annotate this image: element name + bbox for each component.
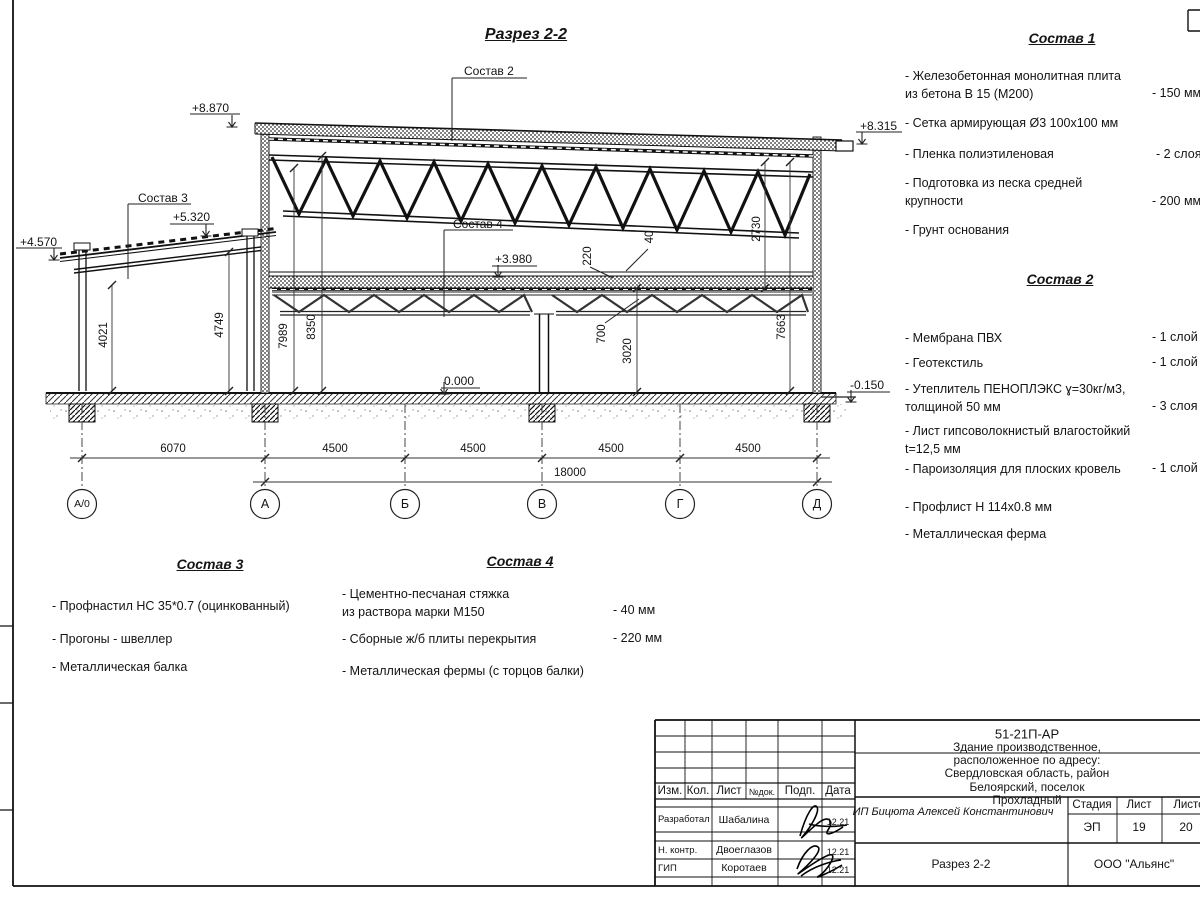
- sostav4-value: - 40 мм: [613, 603, 655, 617]
- sostav2-value: - 1 слой: [1152, 330, 1198, 344]
- sheet-number: 19: [1132, 820, 1145, 834]
- axis-bubble-d: Д: [813, 497, 821, 511]
- designer-name: ИП Бицюта Алексей Константинович: [853, 806, 1054, 818]
- dim-4021: 4021: [98, 322, 110, 348]
- row-role: Н. контр.: [658, 845, 697, 856]
- sostav2-item: - Мембрана ПВХ: [905, 330, 1002, 348]
- roof-truss: [269, 155, 813, 238]
- sostav2-item: - Пароизоляция для плоских кровель: [905, 461, 1121, 479]
- sostav2-value: - 1 слой: [1152, 355, 1198, 369]
- sostav3-item: - Профнастил НС 35*0.7 (оцинкованный): [52, 598, 290, 616]
- sheets-label: Листов: [1173, 799, 1200, 811]
- axis-bubble-a: А: [261, 497, 269, 511]
- row-role: Разработал: [658, 814, 710, 825]
- sostav3-item: - Металлическая балка: [52, 659, 187, 677]
- row-name: Шабалина: [719, 814, 770, 826]
- sostav2-item: - Геотекстиль: [905, 355, 983, 373]
- elevation-top-left: +8.870: [192, 101, 229, 115]
- elevation-arrows: [49, 115, 868, 402]
- dim-chain-ticks: [78, 454, 821, 486]
- sostav2-title: Состав 2: [1027, 271, 1094, 287]
- axis-bubble-g: Г: [677, 497, 684, 511]
- sostav3-title: Состав 3: [177, 556, 244, 572]
- stage-label: Стадия: [1072, 799, 1111, 811]
- sheets-total: 20: [1179, 820, 1192, 834]
- vertical-dims: [112, 156, 790, 392]
- leanto: [60, 229, 276, 392]
- sostav4-item: - Цементно-песчаная стяжка из раствора м…: [342, 586, 509, 622]
- dim-chain: [70, 458, 832, 482]
- col-podp: Подп.: [785, 785, 816, 797]
- sostav3-item: - Прогоны - швеллер: [52, 631, 172, 649]
- col-list: Лист: [717, 785, 742, 797]
- row-date: 12.21: [827, 865, 850, 875]
- organization-name: ООО "Альянс": [1094, 857, 1174, 871]
- dim-7989: 7989: [278, 323, 290, 349]
- elevation-top-right: +8.315: [860, 119, 897, 133]
- callout-sostav4: Состав 4: [453, 217, 503, 231]
- elevation-leanto-low: +4.570: [20, 235, 57, 249]
- dim-8350: 8350: [306, 314, 318, 340]
- drawing-sheet: Разрез 2-2 Состав 2 Состав 3 Состав 4 +8…: [0, 0, 1200, 900]
- dim-700: 700: [596, 324, 608, 343]
- sostav1-item: - Пленка полиэтиленовая: [905, 146, 1054, 164]
- sostav2-item: - Утеплитель ПЕНОПЛЭКС ɣ=30кг/м3, толщин…: [905, 381, 1125, 417]
- section-title: Разрез 2-2: [485, 26, 567, 44]
- row-name: Коротаев: [721, 862, 766, 874]
- dim-4749: 4749: [214, 312, 226, 338]
- sostav1-value: - 2 слоя: [1156, 147, 1200, 161]
- axis-bubbles: [68, 490, 832, 519]
- sostav1-item: - Сетка армирующая Ø3 100х100 мм: [905, 115, 1118, 133]
- drawing-name: Разрез 2-2: [932, 857, 991, 871]
- sostav2-value: - 1 слой: [1152, 461, 1198, 475]
- col-ndok: №док.: [749, 787, 775, 797]
- dim-7663: 7663: [776, 314, 788, 340]
- stage-value: ЭП: [1083, 820, 1100, 834]
- axis-bubble-b: Б: [401, 497, 409, 511]
- sostav4-title: Состав 4: [487, 553, 554, 569]
- row-role: ГИП: [658, 863, 677, 874]
- col-izm: Изм.: [658, 785, 683, 797]
- sostav4-value: - 220 мм: [613, 631, 662, 645]
- dim-2730: 2730: [751, 216, 763, 242]
- callout-sostav3: Состав 3: [138, 191, 188, 205]
- ground: [46, 393, 856, 422]
- sostav1-item: - Подготовка из песка средней крупности: [905, 175, 1082, 211]
- sostav1-item: - Железобетонная монолитная плита из бет…: [905, 68, 1121, 104]
- elevation-mid-floor: +3.980: [495, 252, 532, 266]
- dim-18000: 18000: [554, 467, 586, 479]
- callout-sostav2: Состав 2: [464, 64, 514, 78]
- sostav4-item: - Сборные ж/б плиты перекрытия: [342, 631, 536, 649]
- row-date: 12.21: [827, 817, 850, 827]
- sostav2-item: - Профлист Н 114х0.8 мм: [905, 499, 1052, 517]
- sostav1-title: Состав 1: [1029, 30, 1096, 46]
- project-description: Здание производственное, расположенное п…: [941, 741, 1114, 807]
- row-name: Двоеглазов: [716, 844, 772, 856]
- dim-3020: 3020: [622, 338, 634, 364]
- sostav2-value: - 3 слоя: [1152, 399, 1197, 413]
- elevation-zero: 0.000: [444, 374, 474, 388]
- row-date: 12.21: [827, 847, 850, 857]
- dim-4500-4: 4500: [735, 443, 761, 455]
- vertical-dim-ticks: [108, 152, 794, 396]
- sostav1-value: - 200 мм: [1152, 194, 1200, 208]
- sheet-label: Лист: [1127, 799, 1152, 811]
- elevation-minus: -0.150: [850, 378, 884, 392]
- sostav1-item: - Грунт основания: [905, 222, 1009, 240]
- dim-4500-3: 4500: [598, 443, 624, 455]
- axis-bubble-a0: А/0: [74, 498, 90, 510]
- axis-bubble-v: В: [538, 497, 546, 511]
- dim-4500-2: 4500: [460, 443, 486, 455]
- col-kol: Кол.: [687, 785, 710, 797]
- leaders: [16, 78, 902, 392]
- col-data: Дата: [825, 785, 850, 797]
- middle-floor: [269, 272, 813, 315]
- dim-40: 40: [644, 231, 656, 244]
- sostav1-value: - 150 мм: [1152, 86, 1200, 100]
- sostav2-item: - Металлическая ферма: [905, 526, 1046, 544]
- dim-220: 220: [582, 246, 594, 265]
- dim-6070: 6070: [160, 443, 186, 455]
- dim-4500-1: 4500: [322, 443, 348, 455]
- sostav4-item: - Металлическая фермы (с торцов балки): [342, 663, 584, 681]
- sostav2-item: - Лист гипсоволокнистый влагостойкий t=1…: [905, 423, 1130, 459]
- middle-column: [534, 314, 554, 392]
- roof: [255, 123, 853, 156]
- elevation-leanto-high: +5.320: [173, 210, 210, 224]
